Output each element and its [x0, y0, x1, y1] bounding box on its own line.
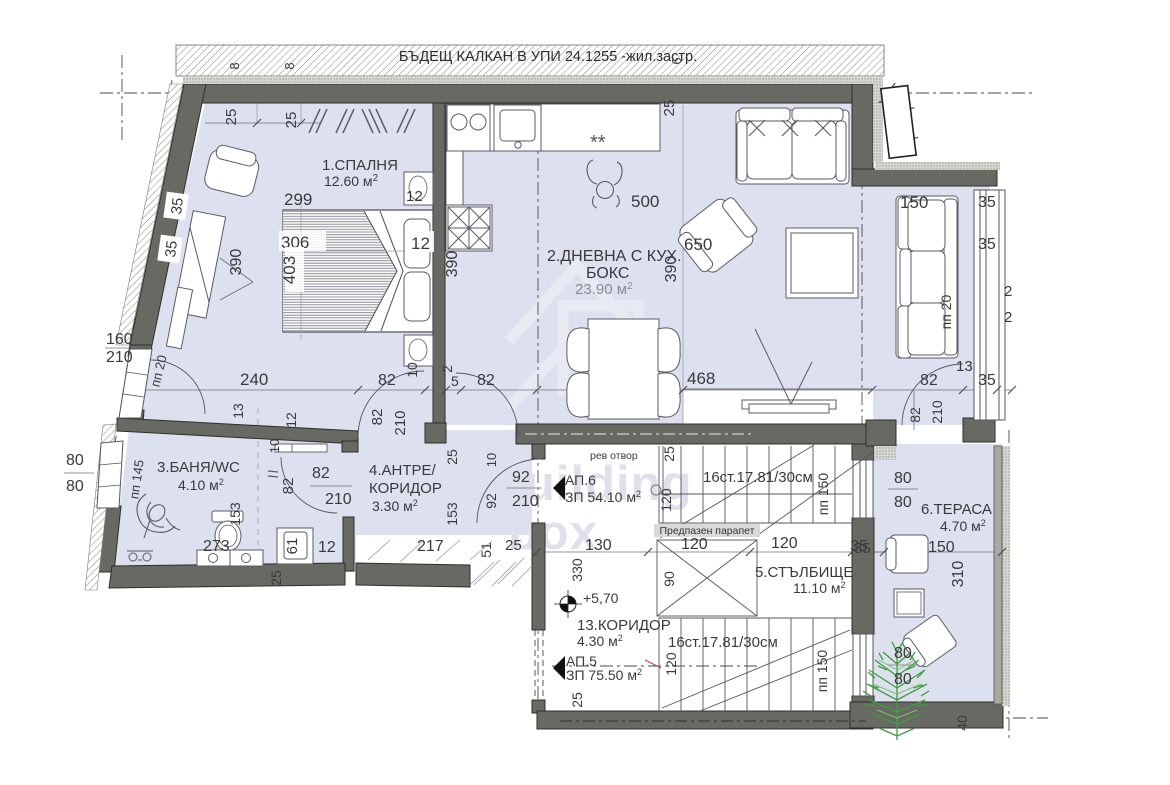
- svg-text:35: 35: [168, 197, 187, 216]
- svg-text:2: 2: [1004, 309, 1012, 326]
- svg-text:10: 10: [404, 362, 420, 378]
- svg-text:217: 217: [417, 538, 444, 555]
- svg-text:210: 210: [512, 493, 539, 510]
- svg-text:240: 240: [240, 370, 268, 389]
- svg-text:10: 10: [484, 453, 499, 467]
- svg-text:8: 8: [227, 62, 242, 69]
- svg-text:16ст.17.81/30см: 16ст.17.81/30см: [703, 469, 813, 486]
- svg-text:82: 82: [920, 372, 938, 389]
- svg-text:210: 210: [929, 400, 945, 424]
- svg-text:150: 150: [900, 193, 928, 212]
- svg-text:2: 2: [439, 365, 455, 373]
- svg-text:8: 8: [282, 62, 297, 69]
- svg-text:3.30 м2: 3.30 м2: [372, 498, 418, 514]
- svg-text:4.70 м2: 4.70 м2: [940, 518, 986, 534]
- svg-text:рев отвор: рев отвор: [590, 450, 638, 462]
- svg-text:92: 92: [512, 469, 530, 486]
- svg-text:6.ТЕРАСА: 6.ТЕРАСА: [921, 501, 992, 518]
- svg-text:82: 82: [280, 478, 297, 495]
- svg-text:210: 210: [392, 410, 409, 435]
- svg-text:25: 25: [661, 100, 678, 117]
- svg-text:12.60 м2: 12.60 м2: [324, 173, 379, 189]
- svg-text:82: 82: [312, 465, 330, 482]
- svg-text:82: 82: [369, 409, 386, 426]
- svg-text:+5,70: +5,70: [583, 590, 619, 606]
- svg-text:25: 25: [268, 570, 284, 586]
- svg-text:90: 90: [661, 571, 677, 587]
- svg-text:80: 80: [894, 494, 912, 511]
- svg-text:35: 35: [978, 194, 996, 211]
- svg-text:6: 6: [669, 57, 684, 64]
- svg-text:35: 35: [978, 236, 996, 253]
- svg-text:80: 80: [894, 671, 912, 688]
- svg-text:390: 390: [444, 251, 461, 278]
- svg-text:4.30 м2: 4.30 м2: [577, 633, 623, 649]
- svg-text:пп 150: пп 150: [814, 650, 830, 693]
- svg-text:БЪДЕЩ КАЛКАН В УПИ 24.1255 -ж: БЪДЕЩ КАЛКАН В УПИ 24.1255 -жил.застр.: [399, 49, 697, 65]
- svg-text:160: 160: [106, 331, 133, 348]
- svg-text:25: 25: [505, 537, 522, 554]
- svg-text:210: 210: [106, 349, 133, 366]
- svg-text:403: 403: [280, 256, 299, 284]
- svg-text:153: 153: [444, 502, 460, 526]
- svg-text:650: 650: [684, 235, 712, 254]
- svg-text:5.СТЪЛБИЩЕ: 5.СТЪЛБИЩЕ: [755, 564, 853, 581]
- svg-text:120: 120: [658, 488, 674, 512]
- svg-text:130: 130: [585, 537, 612, 554]
- svg-text:25: 25: [283, 112, 300, 129]
- svg-text:80: 80: [66, 478, 84, 495]
- svg-text:11.10 м2: 11.10 м2: [793, 580, 846, 596]
- svg-text:25: 25: [223, 109, 240, 126]
- svg-text:120: 120: [771, 535, 798, 552]
- svg-text:120: 120: [663, 652, 679, 676]
- svg-text:80: 80: [894, 470, 912, 487]
- svg-text:4.АНТРЕ/: 4.АНТРЕ/: [369, 462, 437, 479]
- svg-text:120: 120: [681, 536, 708, 553]
- svg-text:2: 2: [1004, 283, 1012, 300]
- svg-text:12: 12: [318, 539, 336, 556]
- svg-text:12: 12: [406, 188, 423, 205]
- svg-text:25: 25: [444, 449, 460, 465]
- svg-text:ЗП 75.50 м2: ЗП 75.50 м2: [566, 667, 642, 683]
- svg-text:БОКС: БОКС: [586, 265, 629, 282]
- svg-text:13: 13: [230, 403, 246, 419]
- svg-text:210: 210: [325, 491, 352, 508]
- svg-text:92: 92: [483, 493, 499, 509]
- svg-text:61: 61: [284, 538, 301, 555]
- svg-text:35: 35: [854, 540, 871, 557]
- svg-text:16ст.17.81/30см: 16ст.17.81/30см: [668, 634, 778, 651]
- svg-text:пп 150: пп 150: [815, 473, 831, 516]
- svg-text:273: 273: [203, 538, 230, 555]
- svg-text:390: 390: [663, 256, 680, 283]
- svg-text:ЗП 54.10 м2: ЗП 54.10 м2: [565, 489, 641, 505]
- svg-text:2.ДНЕВНА С КУХ.: 2.ДНЕВНА С КУХ.: [547, 248, 682, 265]
- svg-text:АП.6: АП.6: [565, 472, 596, 488]
- svg-text:35: 35: [162, 240, 181, 259]
- svg-text:12: 12: [411, 234, 430, 253]
- svg-text:80: 80: [894, 645, 912, 662]
- svg-text:3.БАНЯ/WC: 3.БАНЯ/WC: [157, 459, 240, 476]
- svg-text:390: 390: [228, 249, 245, 276]
- svg-text:25: 25: [661, 446, 677, 462]
- svg-text:299: 299: [284, 190, 312, 209]
- svg-text:25: 25: [569, 692, 585, 708]
- svg-text:500: 500: [631, 192, 659, 211]
- svg-text:пп 20: пп 20: [938, 294, 954, 329]
- svg-text:35: 35: [978, 372, 996, 389]
- svg-text:80: 80: [66, 452, 84, 469]
- svg-text:310: 310: [950, 561, 967, 588]
- svg-text:153: 153: [227, 502, 243, 526]
- svg-text:КОРИДОР: КОРИДОР: [369, 480, 442, 497]
- svg-text:40: 40: [954, 715, 970, 731]
- svg-text:10: 10: [267, 439, 282, 453]
- svg-text:13: 13: [956, 358, 973, 375]
- svg-text:468: 468: [687, 369, 715, 388]
- svg-text:82: 82: [907, 407, 923, 423]
- svg-text:82: 82: [477, 372, 495, 389]
- svg-text:4.10 м2: 4.10 м2: [178, 477, 224, 493]
- svg-text:1.СПАЛНЯ: 1.СПАЛНЯ: [322, 157, 398, 174]
- svg-text:330: 330: [569, 558, 585, 582]
- svg-text:12: 12: [283, 412, 299, 428]
- svg-text:**: **: [590, 132, 606, 154]
- svg-text:51: 51: [478, 542, 494, 558]
- svg-text:150: 150: [928, 539, 955, 556]
- svg-text:82: 82: [378, 372, 396, 389]
- svg-text:13.КОРИДОР: 13.КОРИДОР: [577, 617, 671, 634]
- svg-text:5: 5: [451, 373, 459, 389]
- svg-text:23.90 м2: 23.90 м2: [575, 281, 633, 298]
